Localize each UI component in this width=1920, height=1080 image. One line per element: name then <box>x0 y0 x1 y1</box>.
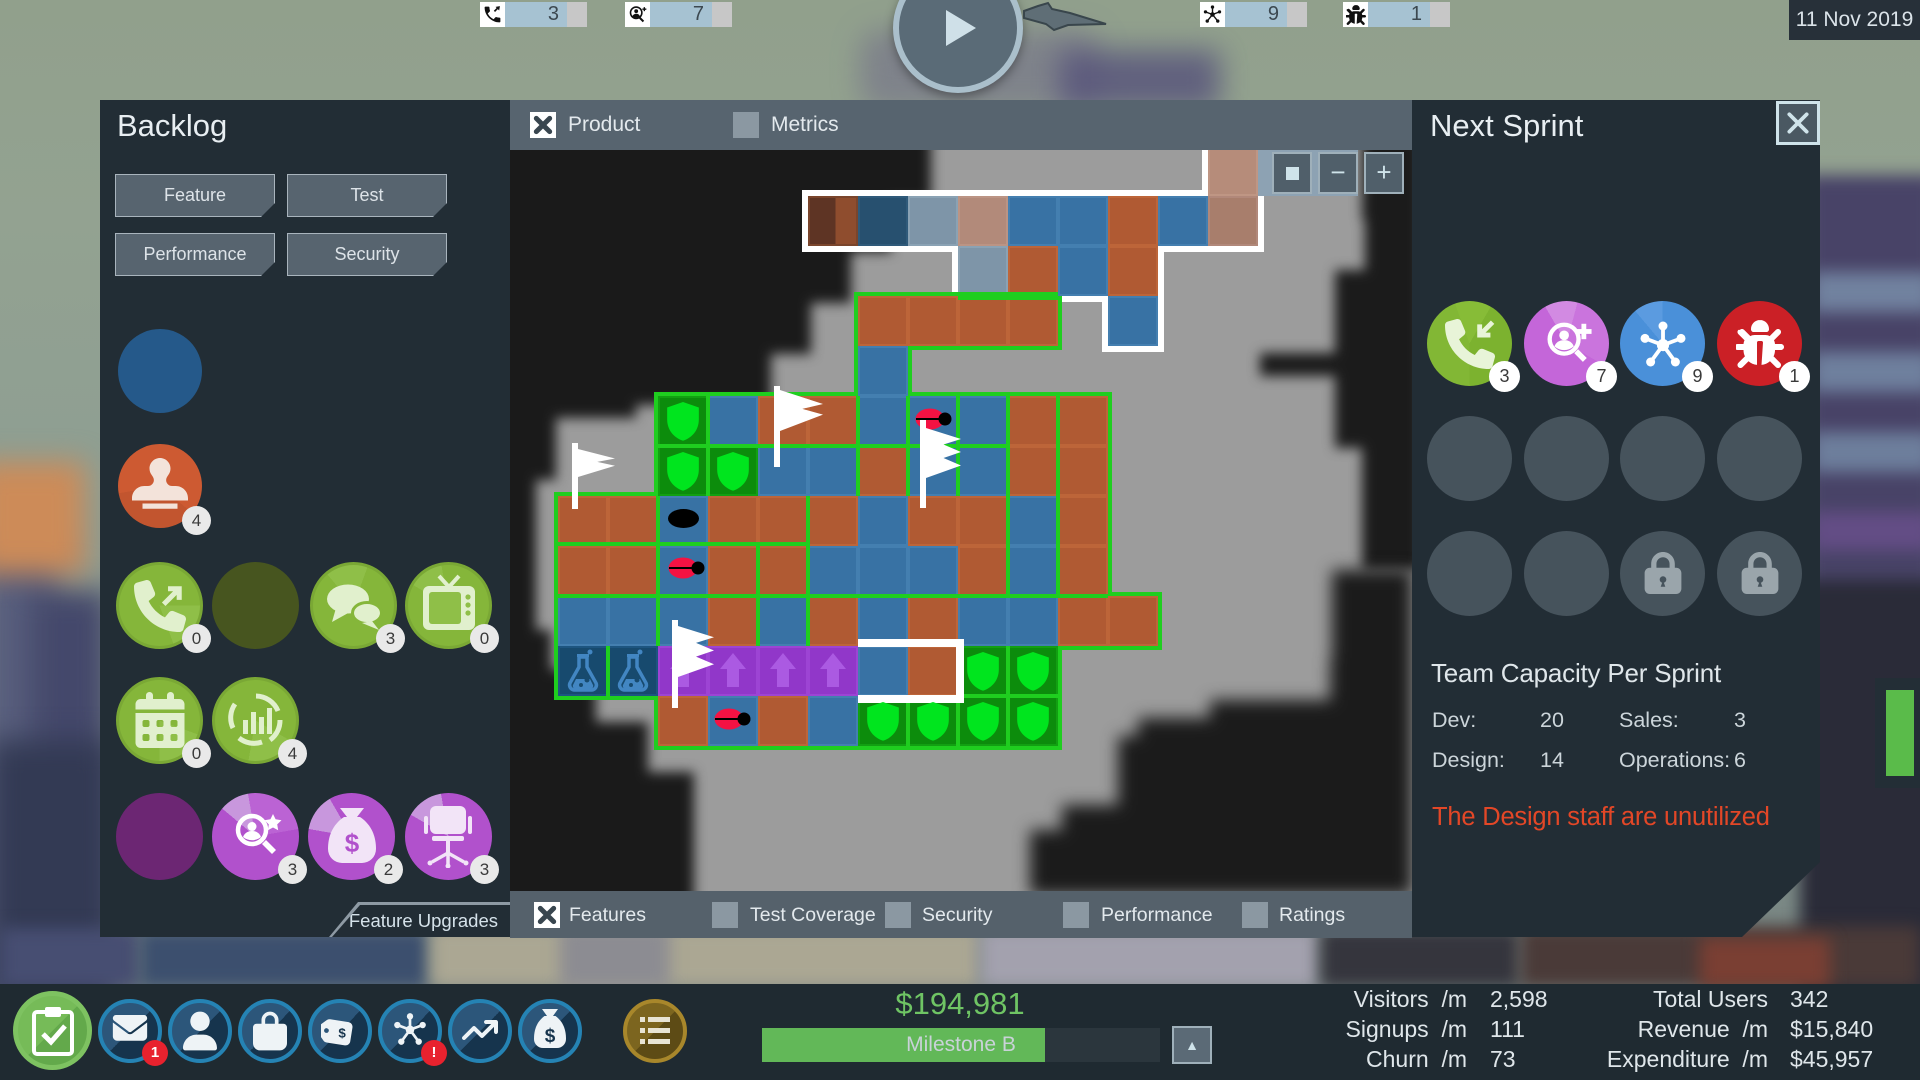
svg-text:$: $ <box>345 828 360 858</box>
svg-text:$: $ <box>545 1026 556 1047</box>
svg-text:$: $ <box>338 1025 346 1040</box>
